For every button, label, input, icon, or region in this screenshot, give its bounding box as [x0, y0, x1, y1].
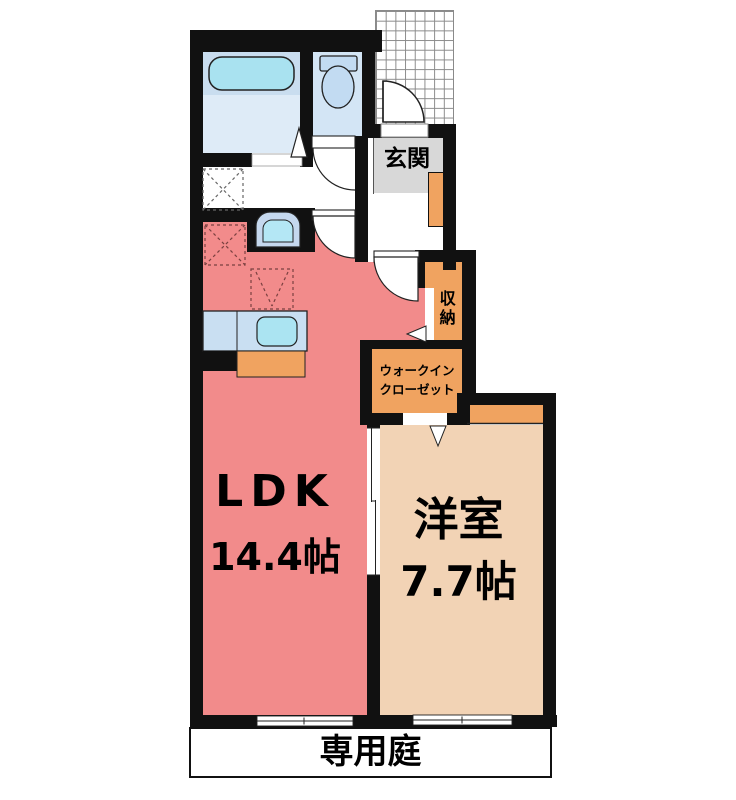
- closet-door-arrow-icon: [430, 426, 446, 446]
- kitchen-sink-icon: [257, 317, 297, 346]
- entrance-label: 玄関: [374, 145, 440, 175]
- washing-machine-space-icon: [203, 169, 243, 210]
- entrance-threshold: [381, 124, 428, 137]
- kitchen-cabinet: [237, 351, 305, 377]
- storage-label: 収納: [434, 280, 458, 338]
- storage-door-arrow-icon: [407, 326, 426, 342]
- refrigerator-space-icon: [205, 225, 245, 265]
- overhead-cupboard-icon: [251, 269, 293, 309]
- toilet-door-leaf: [312, 136, 355, 148]
- walk-in-closet-label: ウォークイン クローゼット: [368, 358, 466, 402]
- private-garden-label: 専用庭: [189, 729, 552, 776]
- western-room-label: 洋室: [376, 493, 541, 547]
- window-ldk: [257, 716, 353, 726]
- kitchen-base-wall: [203, 351, 237, 371]
- floor-plan: 玄関 収納 ウォークイン クローゼット LDK 14.4帖 洋室 7.7帖 専用…: [0, 0, 736, 800]
- toilet-door-arc: [313, 148, 355, 190]
- toilet-icon: [322, 66, 354, 108]
- window-bedroom: [413, 715, 512, 725]
- washroom-door-arc: [313, 216, 355, 258]
- western-room-size-label: 7.7帖: [376, 556, 541, 608]
- washbasin-bowl-icon: [263, 220, 293, 242]
- bathtub-icon: [209, 57, 294, 90]
- entrance-door-arc: [383, 81, 424, 122]
- ldk-size-label: 14.4帖: [195, 534, 355, 582]
- folding-door-icon: [291, 128, 307, 157]
- hall-door-arc: [374, 257, 418, 301]
- ldk-label: LDK: [195, 466, 355, 518]
